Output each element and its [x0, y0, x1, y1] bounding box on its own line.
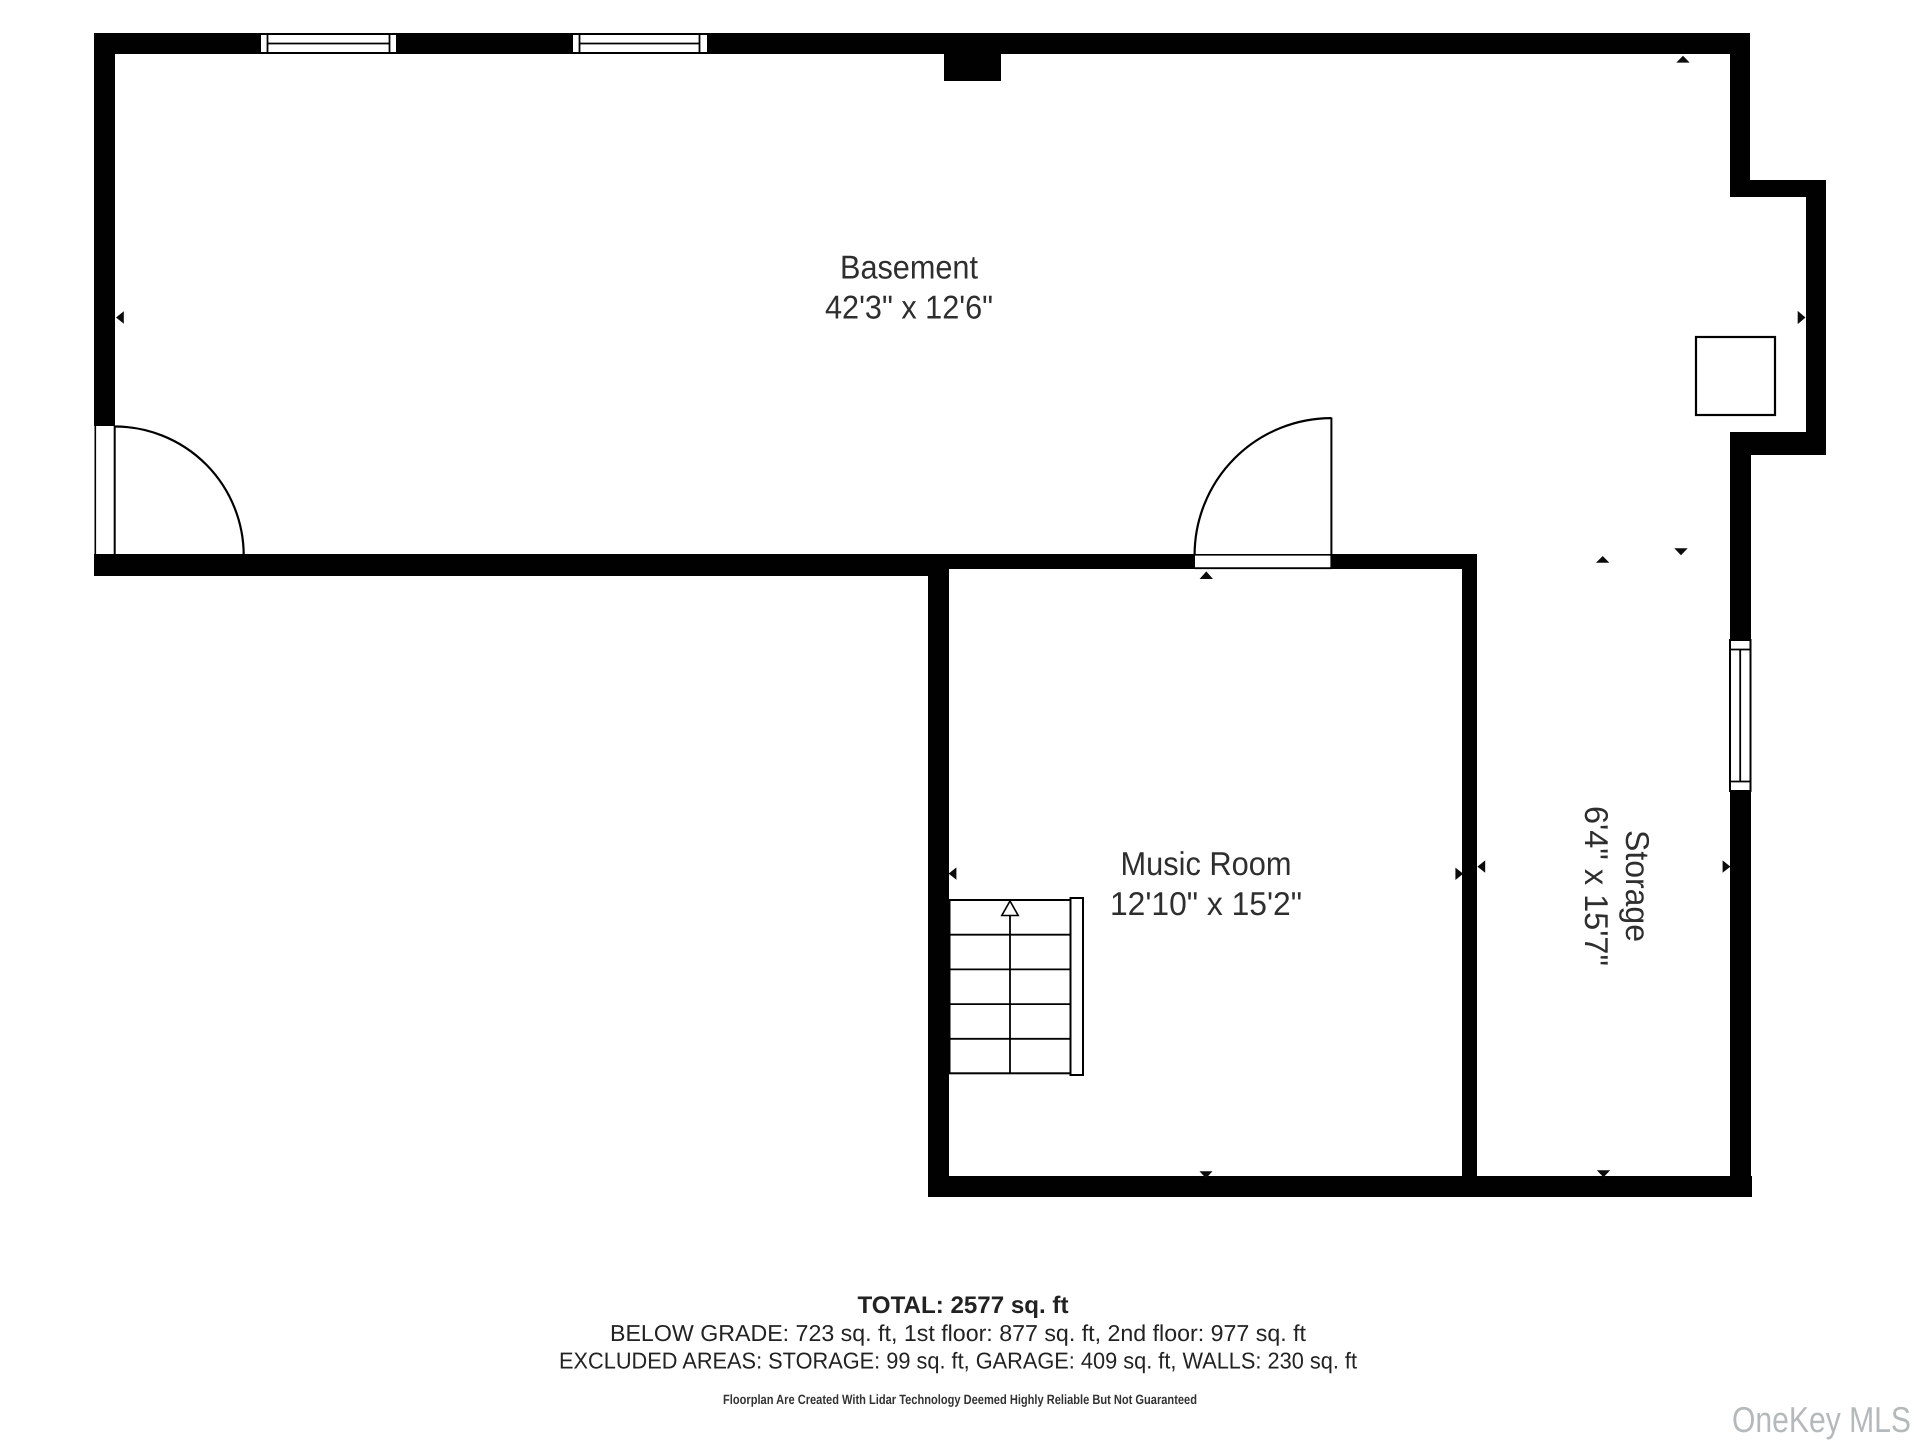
svg-text:6'4" x 15'7": 6'4" x 15'7": [1578, 806, 1615, 966]
svg-text:Floorplan Are Created With Lid: Floorplan Are Created With Lidar Technol…: [723, 1392, 1197, 1407]
svg-text:12'10" x 15'2": 12'10" x 15'2": [1110, 885, 1302, 922]
svg-text:TOTAL: 2577 sq. ft: TOTAL: 2577 sq. ft: [858, 1292, 1069, 1319]
svg-text:Basement: Basement: [840, 249, 978, 286]
svg-text:BELOW GRADE: 723 sq. ft, 1st f: BELOW GRADE: 723 sq. ft, 1st floor: 877 …: [610, 1320, 1307, 1346]
svg-text:EXCLUDED AREAS: STORAGE: 99 sq: EXCLUDED AREAS: STORAGE: 99 sq. ft, GARA…: [559, 1348, 1358, 1374]
svg-text:Storage: Storage: [1619, 830, 1656, 942]
svg-text:Music Room: Music Room: [1121, 845, 1292, 882]
svg-text:OneKey MLS: OneKey MLS: [1732, 1399, 1911, 1440]
svg-text:42'3" x 12'6": 42'3" x 12'6": [825, 289, 993, 326]
